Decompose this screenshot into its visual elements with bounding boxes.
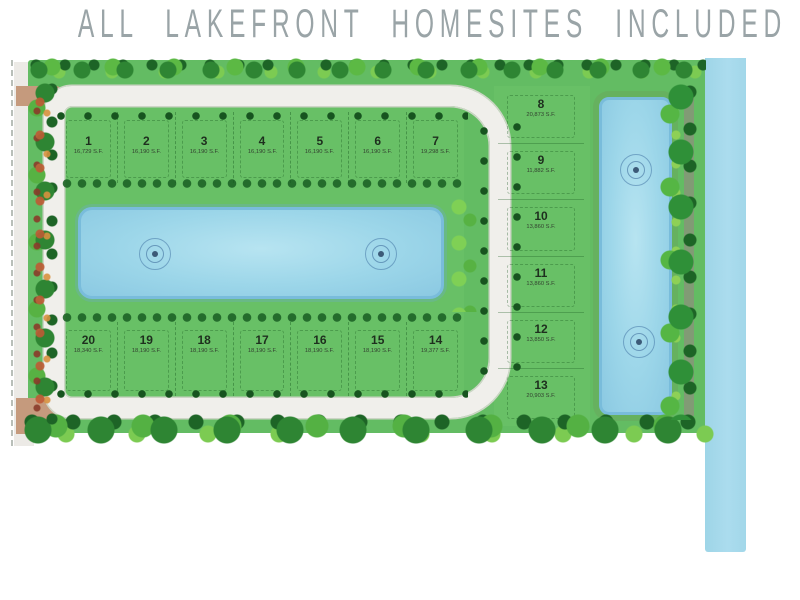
lot-area-label: 13,860 S.F. [510,280,572,286]
lot-area-label: 16,190 S.F. [299,148,340,154]
lot-10: 1013,860 S.F. [498,200,584,256]
lot-8: 820,873 S.F. [498,88,584,144]
lot-14: 1419,377 S.F. [407,322,464,396]
lot-16: 1618,190 S.F. [291,322,349,396]
lot-area-label: 13,860 S.F. [510,223,572,229]
lot-column-right: 820,873 S.F. 911,882 S.F. 1013,860 S.F. … [498,88,584,424]
fountain-icon [139,238,171,270]
lot-number: 18 [176,333,233,347]
lot-5: 516,190 S.F. [291,112,349,183]
fountain-icon [365,238,397,270]
lot-number: 19 [118,333,175,347]
lot-number: 17 [234,333,291,347]
lot-11: 1113,860 S.F. [498,257,584,313]
lot-number: 11 [498,266,584,280]
lot-number: 16 [291,333,348,347]
lot-number: 1 [60,134,117,148]
lot-area-label: 19,377 S.F. [415,347,456,353]
lot-area-label: 18,190 S.F. [242,347,283,353]
lot-area-label: 20,873 S.F. [510,111,572,117]
lot-15: 1518,190 S.F. [349,322,407,396]
lot-12: 1213,850 S.F. [498,313,584,369]
lot-row-bottom: 2018,340 S.F. 1918,190 S.F. 1818,190 S.F… [60,322,464,396]
lot-area-label: 19,298 S.F. [415,148,456,154]
lot-number: 20 [60,333,117,347]
lot-number: 10 [498,209,584,223]
lot-number: 3 [176,134,233,148]
lot-number: 6 [349,134,406,148]
page-title: ALL LAKEFRONT HOMESITES INCLUDED [78,3,787,48]
lot-area-label: 18,190 S.F. [357,347,398,353]
lot-area-label: 18,190 S.F. [184,347,225,353]
lot-area-label: 16,190 S.F. [184,148,225,154]
canal [705,58,746,552]
title-bar: ALL LAKEFRONT HOMESITES INCLUDED [0,8,800,42]
lot-area-label: 16,729 S.F. [68,148,109,154]
lot-area-label: 18,190 S.F. [299,347,340,353]
lot-number: 14 [407,333,464,347]
lot-area-label: 18,340 S.F. [68,347,109,353]
lot-17: 1718,190 S.F. [234,322,292,396]
lot-area-label: 16,190 S.F. [357,148,398,154]
lot-20: 2018,340 S.F. [60,322,118,396]
lot-area-label: 20,903 S.F. [510,392,572,398]
lot-9: 911,882 S.F. [498,144,584,200]
lot-area-label: 16,190 S.F. [242,148,283,154]
hedge-row-lower [60,313,464,322]
lot-area-label: 18,190 S.F. [126,347,167,353]
lot-area-label: 11,882 S.F. [510,167,572,173]
lot-18: 1818,190 S.F. [176,322,234,396]
tree-row-top [28,54,706,86]
fountain-icon [620,154,652,186]
tree-row-bottom [22,408,714,462]
lot-number: 5 [291,134,348,148]
lot-number: 13 [498,378,584,392]
property-boundary-dashed-line [11,60,13,446]
lot-number: 4 [234,134,291,148]
lot-19: 1918,190 S.F. [118,322,176,396]
lot-area-label: 13,850 S.F. [510,336,572,342]
lot-number: 15 [349,333,406,347]
lot-number: 12 [498,322,584,336]
lot-2: 216,190 S.F. [118,112,176,183]
lot-number: 7 [407,134,464,148]
lot-number: 2 [118,134,175,148]
lot-4: 416,190 S.F. [234,112,292,183]
lot-6: 616,190 S.F. [349,112,407,183]
lot-row-top: 116,729 S.F. 216,190 S.F. 316,190 S.F. 4… [60,112,464,183]
fountain-icon [623,326,655,358]
lot-number: 8 [498,97,584,111]
tree-strip-right [656,82,706,420]
lot-7: 719,298 S.F. [407,112,464,183]
bush-cluster [450,198,482,312]
site-plan-image: ALL LAKEFRONT HOMESITES INCLUDED 116,729… [0,0,800,600]
lot-number: 9 [498,153,584,167]
shrub-strip-left [32,96,54,414]
central-lake [78,207,444,299]
lot-area-label: 16,190 S.F. [126,148,167,154]
lot-1: 116,729 S.F. [60,112,118,183]
lot-3: 316,190 S.F. [176,112,234,183]
